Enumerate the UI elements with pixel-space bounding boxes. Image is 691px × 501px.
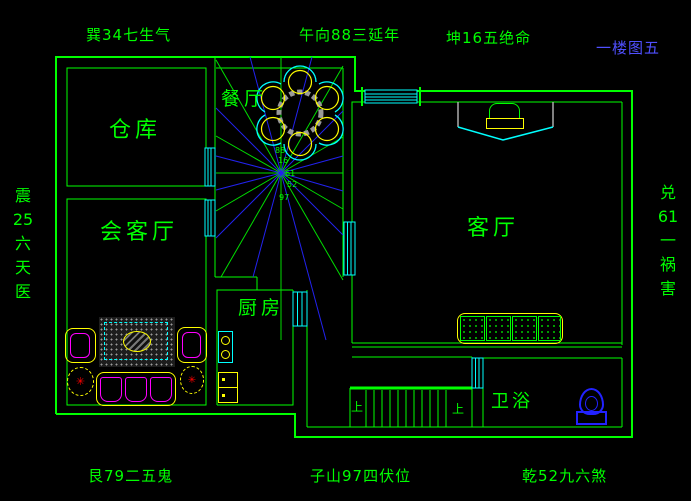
annotation-top-center: 午向88三延年: [299, 24, 400, 45]
right-col-char-1: 兑: [660, 185, 676, 201]
floor-plan-canvas: ✳ ✳ 巽34七生气 午向88三延年 坤16五绝命 一楼图五 艮79二五鬼 子山…: [0, 0, 691, 501]
annotation-left-column: 震 25 六 天 医: [6, 188, 40, 300]
compass-number-3: 61: [285, 170, 295, 178]
armchair-right: [177, 327, 207, 363]
room-label-warehouse: 仓库: [109, 112, 161, 144]
cabinet-knob-top: [222, 378, 225, 381]
drawing-title: 一楼图五: [596, 37, 660, 58]
annotation-bottom-right: 乾52九六煞: [522, 465, 607, 486]
stove: [218, 331, 233, 363]
compass-number-1: 88: [275, 147, 285, 155]
sofa-living-cushion-3: [512, 316, 537, 341]
sofa-living-cushion-2: [486, 316, 511, 341]
dining-table: [257, 66, 343, 160]
right-col-char-2: 61: [658, 209, 678, 225]
cabinet-knob-bottom: [222, 394, 225, 397]
room-label-bathroom: 卫浴: [491, 387, 533, 413]
room-label-reception: 会客厅: [100, 214, 178, 246]
sofa-seat-2: [125, 377, 147, 402]
plant-left: ✳: [67, 367, 94, 396]
room-label-living: 客厅: [467, 210, 519, 242]
right-col-char-5: 害: [660, 281, 676, 297]
stairs-up-label-left: 上: [351, 398, 363, 415]
left-col-char-4: 天: [15, 260, 31, 276]
cabinet-divider: [219, 387, 237, 388]
door-bathroom: [472, 358, 483, 388]
left-col-char-5: 医: [15, 284, 31, 300]
chair-back-arcs: [257, 66, 343, 160]
armchair-left: [65, 328, 96, 363]
annotation-top-right: 坤16五绝命: [446, 27, 531, 48]
annotation-bottom-center: 子山97四伏位: [310, 465, 411, 486]
armchair-right-cushion: [182, 332, 201, 358]
window-reception-east: [205, 200, 215, 236]
cad-drawing: [0, 0, 691, 501]
toilet-tank: [576, 411, 607, 425]
tv-back: [489, 103, 520, 119]
room-label-dining: 餐厅: [221, 84, 267, 111]
annotation-right-column: 兑 61 一 祸 害: [650, 185, 686, 297]
left-col-char-2: 25: [13, 212, 33, 228]
sofa-seat-3: [150, 377, 172, 402]
left-col-char-1: 震: [15, 188, 31, 204]
burner-top: [221, 336, 230, 345]
stairs-up-label-right: 上: [452, 400, 464, 417]
annotation-bottom-left: 艮79二五鬼: [88, 465, 173, 486]
sofa-living-cushion-4: [538, 316, 561, 341]
coffee-table-oval: [123, 331, 151, 352]
left-col-char-3: 六: [15, 236, 31, 252]
armchair-left-cushion: [70, 333, 90, 358]
sofa-seat-1: [100, 377, 122, 402]
toilet-seat: [585, 396, 598, 411]
plant-right: ✳: [180, 366, 204, 394]
burner-bottom: [221, 350, 230, 359]
bathroom-corridor-walls: [307, 357, 622, 427]
right-col-char-4: 祸: [660, 257, 676, 273]
tv-stand: [486, 118, 524, 129]
window-top-north: [365, 90, 417, 103]
sofa-reception: [96, 372, 176, 406]
compass-number-2: 16: [278, 157, 288, 165]
annotation-top-left: 巽34七生气: [86, 24, 171, 45]
compass-number-4: 52: [287, 181, 297, 189]
sofa-living-cushion-1: [460, 316, 485, 341]
rug: [99, 317, 175, 367]
compass-number-5: 97: [279, 194, 289, 202]
right-col-char-3: 一: [660, 233, 676, 249]
kitchen-cabinet: [218, 372, 238, 403]
window-kitchen-east: [293, 292, 307, 326]
window-living-west: [344, 222, 355, 275]
room-label-kitchen: 厨房: [238, 293, 284, 320]
window-warehouse-east: [205, 148, 215, 186]
